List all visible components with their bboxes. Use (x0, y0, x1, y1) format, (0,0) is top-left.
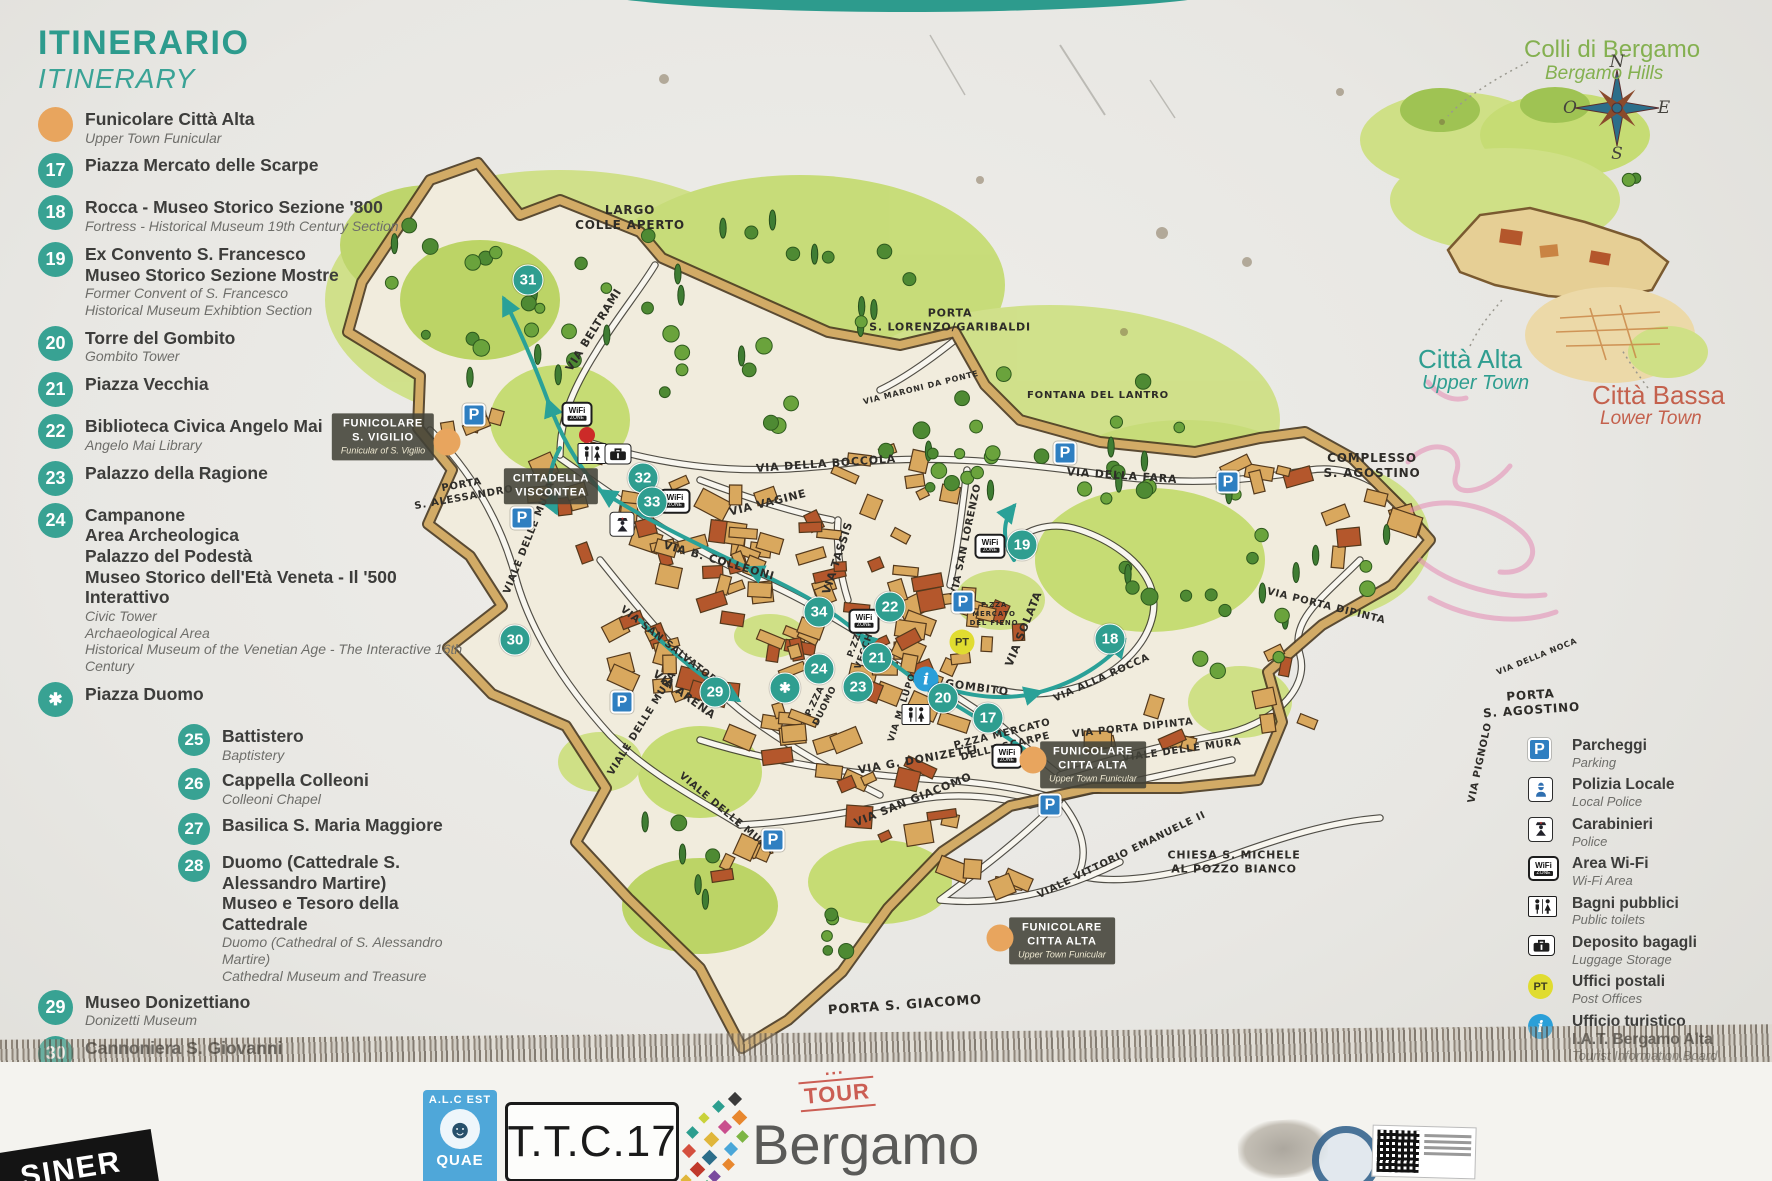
legend-item-text: Polizia LocaleLocal Police (1572, 776, 1675, 809)
parking-icon: P (463, 404, 486, 427)
map-marker-19: 19 (1007, 530, 1038, 561)
street-label: FONTANA DEL LANTRO (1027, 390, 1169, 403)
logo-diamond (698, 1112, 709, 1123)
citta-bassa-label: Città Bassa (1592, 380, 1725, 411)
legend-item-title: Area Wi-Fi (1572, 855, 1649, 873)
logo-diamond (690, 1162, 706, 1178)
station-label-line: FUNICOLARE (1049, 745, 1137, 759)
wifi-icon: WiFiZONE (992, 743, 1023, 768)
logo-diamond (718, 1120, 732, 1134)
item-subtitle: Baptistery (222, 747, 304, 764)
wifi-icon: WiFiZONE (1528, 856, 1559, 881)
citta-alta-sublabel: Upper Town (1422, 372, 1529, 395)
funicular-station-dot (987, 925, 1014, 952)
legend-item-subtitle: Local Police (1572, 794, 1675, 810)
star-badge: ✱ (38, 682, 73, 717)
itinerary-item-text: Piazza Duomo (85, 682, 204, 705)
legend-item-subtitle: Post Offices (1572, 991, 1665, 1007)
map-marker-20: 20 (928, 683, 959, 714)
map-icon-pos: P (952, 591, 975, 614)
toilets-icon (1528, 896, 1557, 917)
number-badge: 18 (38, 195, 73, 230)
itinerary-item: 19Ex Convento S. FrancescoMuseo Storico … (38, 242, 468, 319)
item-title: Piazza Mercato delle Scarpe (85, 155, 318, 176)
item-subtitle: Gombito Tower (85, 348, 235, 365)
compass-east: E (1658, 98, 1670, 118)
station-label-line: CITTA ALTA (1049, 759, 1137, 773)
logo-diamond (680, 1174, 691, 1181)
number-badge: 19 (38, 242, 73, 277)
luggage-icon (605, 444, 632, 465)
map-icon-pos: P (1217, 471, 1240, 494)
station-label: FUNICOLARECITTA ALTAUpper Town Funicular (1009, 917, 1115, 964)
item-subtitle: Duomo (Cathedral of S. Alessandro Martir… (222, 934, 468, 968)
number-badge: 22 (38, 414, 73, 449)
item-title: Battistero (222, 726, 304, 747)
item-title: Torre del Gombito (85, 328, 235, 349)
number-badge: 25 (178, 724, 210, 756)
logo-diamond (712, 1100, 725, 1113)
itinerary-item-text: Basilica S. Maria Maggiore (222, 813, 443, 836)
itinerary-item: 25BattisteroBaptistery (178, 724, 468, 763)
parking-icon: P (611, 691, 634, 714)
post-office-icon: PT (950, 630, 975, 655)
citta-alta-label: Città Alta (1418, 344, 1522, 375)
itinerary-item-text: Biblioteca Civica Angelo MaiAngelo Mai L… (85, 414, 323, 453)
map-icon-pos: P (762, 829, 785, 852)
legend-item-text: Area Wi-FiWi-Fi Area (1572, 855, 1649, 888)
itinerary-item-text: Cappella ColleoniColleoni Chapel (222, 768, 369, 807)
luggage-icon (1528, 935, 1555, 956)
parking-icon: P (1039, 794, 1062, 817)
number-badge: 29 (38, 990, 73, 1025)
tour-sticker: ▪▪▪ TOUR (797, 1065, 877, 1133)
ultras-sticker-bottom: QUAE (423, 1152, 497, 1169)
legend-item-subtitle: Police (1572, 834, 1653, 850)
itinerary-item-text: BattisteroBaptistery (222, 724, 304, 763)
item-title: Rocca - Museo Storico Sezione '800 (85, 197, 399, 218)
number-badge: 23 (38, 461, 73, 496)
street-label: PORTA S. LORENZO/GARIBALDI (869, 306, 1031, 334)
item-title: Cappella Colleoni (222, 770, 369, 791)
item-title: Basilica S. Maria Maggiore (222, 815, 443, 836)
logo-diamond (708, 1170, 721, 1181)
item-title: Palazzo della Ragione (85, 463, 268, 484)
itinerary-item: 24CampanoneArea ArcheologicaPalazzo del … (38, 503, 468, 675)
number-badge: 26 (178, 768, 210, 800)
legend-item-police: Polizia LocaleLocal Police (1528, 776, 1772, 809)
number-badge: 28 (178, 850, 210, 882)
map-icon-pos: P (511, 507, 534, 530)
ultras-emblem-icon: ☻ (440, 1109, 480, 1149)
itinerary-list: Funicolare Città AltaUpper Town Funicula… (38, 107, 468, 1181)
legend-item-title: Uffici postali (1572, 973, 1665, 991)
map-marker-22: 22 (875, 592, 906, 623)
map-marker-33: 33 (637, 487, 668, 518)
itinerary-item-text: CampanoneArea ArcheologicaPalazzo del Po… (85, 503, 468, 675)
legend-item-text: Deposito bagagliLuggage Storage (1572, 934, 1697, 967)
station-label-line: CITTADELLA (513, 472, 589, 486)
map-icon-pos (902, 704, 931, 728)
itinerary-item: 29Museo DonizettianoDonizetti Museum (38, 990, 468, 1029)
number-badge: 20 (38, 326, 73, 361)
legend-item-pt: PTUffici postaliPost Offices (1528, 973, 1772, 1006)
map-marker-21: 21 (862, 643, 893, 674)
item-subtitle: Colleoni Chapel (222, 791, 369, 808)
legend-icon-cell (1528, 776, 1562, 802)
itinerary-item-text: Museo DonizettianoDonizetti Museum (85, 990, 250, 1029)
panel-title: ITINERARIO (38, 24, 468, 63)
tour-sticker-text: TOUR (798, 1076, 875, 1112)
map-icon-pos: P (1054, 442, 1077, 465)
map-marker-star: ✱ (770, 673, 801, 704)
legend-item-text: ParcheggiParking (1572, 737, 1647, 770)
itinerary-panel: ITINERARIO ITINERARY Funicolare Città Al… (38, 24, 468, 1181)
logo-diamond (728, 1092, 742, 1106)
station-label-line: FUNICOLARE (1018, 921, 1106, 935)
map-icon-pos: WiFiZONE (562, 400, 593, 427)
legend-item-title: Polizia Locale (1572, 776, 1675, 794)
funicular-station-dot (1020, 747, 1047, 774)
map-icon-pos: WiFiZONE (992, 742, 1023, 769)
citta-bassa-sublabel: Lower Town (1600, 408, 1702, 430)
map-icon-pos (987, 925, 1014, 952)
map-marker-31: 31 (513, 265, 544, 296)
map-icon-pos: P (463, 404, 486, 427)
street-label: P.ZZA MERCATO DEL FIENO (970, 601, 1019, 627)
legend-item-subtitle: Public toilets (1572, 912, 1679, 928)
station-label: CITTADELLAVISCONTEA (504, 468, 598, 504)
number-badge: 21 (38, 372, 73, 407)
street-label: CHIESA S. MICHELE AL POZZO BIANCO (1167, 848, 1300, 876)
itinerary-item: Funicolare Città AltaUpper Town Funicula… (38, 107, 468, 146)
itinerary-item: 21Piazza Vecchia (38, 372, 468, 407)
qr-code-icon (1376, 1130, 1419, 1173)
inset-region-subtitle: Bergamo Hills (1545, 63, 1663, 85)
item-subtitle: Historical Museum Exhibtion Section (85, 302, 339, 319)
logo-diamond (682, 1144, 696, 1158)
station-label-line: CITTA ALTA (1018, 935, 1106, 949)
map-marker-23: 23 (843, 672, 874, 703)
station-label: FUNICOLARES. VIGILIOFunicular of S. Vigi… (332, 413, 434, 460)
parking-icon: P (952, 591, 975, 614)
itinerary-item: 26Cappella ColleoniColleoni Chapel (178, 768, 468, 807)
station-label-sub: Upper Town Funicular (1049, 773, 1137, 785)
map-icon-pos (578, 443, 607, 467)
logo-diamond (724, 1142, 738, 1156)
local-police-icon (1528, 777, 1553, 802)
legend-icon-cell: WiFiZONE (1528, 855, 1562, 881)
legend-item-wifi: WiFiZONEArea Wi-FiWi-Fi Area (1528, 855, 1772, 888)
map-icon-pos (1020, 747, 1047, 774)
legend-icon-cell (1528, 895, 1562, 917)
legend-item-title: Parcheggi (1572, 737, 1647, 755)
toilets-icon (578, 443, 607, 464)
map-marker-24: 24 (804, 654, 835, 685)
map-marker-29: 29 (700, 677, 731, 708)
itinerary-item: 18Rocca - Museo Storico Sezione '800Fort… (38, 195, 468, 234)
itinerary-item: 28Duomo (Cattedrale S. Alessandro Martir… (178, 850, 468, 985)
logo-diamond (704, 1132, 720, 1148)
itinerary-item: ✱Piazza Duomo (38, 682, 468, 717)
funicular-station-dot (434, 429, 461, 456)
map-marker-34: 34 (804, 597, 835, 628)
legend-item-luggage: Deposito bagagliLuggage Storage (1528, 934, 1772, 967)
station-label-sub: Upper Town Funicular (1018, 949, 1106, 961)
legend-item-title: Bagni pubblici (1572, 895, 1679, 913)
itinerary-item-text: Piazza Vecchia (85, 372, 209, 395)
post-office-icon: PT (1528, 974, 1553, 999)
panel-subtitle: ITINERARY (38, 63, 468, 95)
item-subtitle: Historical Museum of the Venetian Age - … (85, 641, 468, 675)
map-sign-board: ITINERARIO ITINERARY Funicolare Città Al… (0, 0, 1772, 1181)
carabinieri-icon (610, 512, 635, 537)
station-label-sub: Funicular of S. Vigilio (341, 445, 425, 457)
item-title: Campanone (85, 505, 468, 526)
item-title: Museo e Tesoro della Cattedrale (222, 893, 468, 934)
item-title: Palazzo del Podestà (85, 546, 468, 567)
item-subtitle: Fortress - Historical Museum 19th Centur… (85, 218, 399, 235)
qr-sticker (1371, 1125, 1476, 1180)
itinerary-item-text: Rocca - Museo Storico Sezione '800Fortre… (85, 195, 399, 234)
item-title: Ex Convento S. Francesco (85, 244, 339, 265)
logo-diamond (722, 1158, 735, 1171)
carabinieri-icon (1528, 817, 1553, 842)
ultras-sticker-top: A.L.C EST (423, 1090, 497, 1106)
item-title: Piazza Vecchia (85, 374, 209, 395)
red-dot (579, 427, 595, 443)
parking-icon: P (762, 829, 785, 852)
item-subtitle: Upper Town Funicular (85, 130, 255, 147)
parking-icon: P (1528, 738, 1551, 761)
legend-item-title: Carabinieri (1572, 816, 1653, 834)
legend-item-text: Uffici postaliPost Offices (1572, 973, 1665, 1006)
compass-north: N (1610, 52, 1625, 72)
logo-diamond (736, 1130, 749, 1143)
legend-item-carabinieri: CarabinieriPolice (1528, 816, 1772, 849)
funicular-dot-badge (38, 107, 73, 142)
toilets-icon (902, 704, 931, 725)
ultras-sticker: A.L.C EST ☻ QUAE (423, 1090, 497, 1181)
map-icon-pos: PT (950, 630, 975, 655)
legend-icon-cell: PT (1528, 973, 1562, 999)
station-label: FUNICOLARECITTA ALTAUpper Town Funicular (1040, 741, 1146, 788)
itinerary-item-text: Palazzo della Ragione (85, 461, 268, 484)
legend-item-subtitle: Luggage Storage (1572, 952, 1697, 968)
legend-icon-cell (1528, 816, 1562, 842)
item-title: Museo Storico Sezione Mostre (85, 265, 339, 286)
legend-item-toilets: Bagni pubbliciPublic toilets (1528, 895, 1772, 928)
itinerary-item-text: Ex Convento S. FrancescoMuseo Storico Se… (85, 242, 339, 319)
station-label-line: FUNICOLARE (341, 417, 425, 431)
legend-item-parking: PParcheggiParking (1528, 737, 1772, 770)
legend-item-title: Deposito bagagli (1572, 934, 1697, 952)
itinerary-item: 23Palazzo della Ragione (38, 461, 468, 496)
station-label-line: VISCONTEA (513, 486, 589, 500)
map-icon-pos (610, 512, 635, 539)
wifi-icon: WiFiZONE (562, 401, 593, 426)
itinerary-item-text: Torre del GombitoGombito Tower (85, 326, 235, 365)
map-marker-30: 30 (500, 625, 531, 656)
street-label: LARGO COLLE APERTO (575, 203, 685, 233)
map-icon-pos (605, 444, 632, 467)
item-title: Biblioteca Civica Angelo Mai (85, 416, 323, 437)
itinerary-item-text: Piazza Mercato delle Scarpe (85, 153, 318, 176)
street-label: COMPLESSO S. AGOSTINO (1323, 451, 1420, 481)
number-badge: 27 (178, 813, 210, 845)
item-title: Duomo (Cattedrale S. Alessandro Martire) (222, 852, 468, 893)
itinerary-item-text: Funicolare Città AltaUpper Town Funicula… (85, 107, 255, 146)
legend-item-subtitle: Wi-Fi Area (1572, 873, 1649, 889)
legend-icon-cell: P (1528, 737, 1562, 761)
legend-item-subtitle: Parking (1572, 755, 1647, 771)
ttc-plate: T.T.C.17 (505, 1102, 679, 1181)
inset-minimap (1360, 62, 1708, 388)
itinerary-item: 27Basilica S. Maria Maggiore (178, 813, 468, 845)
map-icon-pos: P (1039, 794, 1062, 817)
parking-icon: P (1054, 442, 1077, 465)
item-title: Piazza Duomo (85, 684, 204, 705)
parking-icon: P (1217, 471, 1240, 494)
item-subtitle: Donizetti Museum (85, 1012, 250, 1029)
map-icon-pos (579, 427, 595, 443)
item-subtitle: Archaeological Area (85, 625, 468, 642)
number-badge: 24 (38, 503, 73, 538)
itinerary-item: 17Piazza Mercato delle Scarpe (38, 153, 468, 188)
logo-diamond (702, 1150, 718, 1166)
parking-icon: P (511, 507, 534, 530)
wifi-icon: WiFiZONE (975, 533, 1006, 558)
map-icon-pos: P (611, 691, 634, 714)
map-marker-18: 18 (1095, 624, 1126, 655)
item-title: Funicolare Città Alta (85, 109, 255, 130)
item-title: Area Archeologica (85, 525, 468, 546)
legend-item-text: Bagni pubbliciPublic toilets (1572, 895, 1679, 928)
graffiti (1408, 382, 1556, 619)
map-icon-pos (434, 429, 461, 456)
item-subtitle: Cathedral Museum and Treasure (222, 968, 468, 985)
legend-icon-cell (1528, 934, 1562, 956)
compass-south: S (1611, 144, 1623, 164)
item-subtitle: Civic Tower (85, 608, 468, 625)
logo-diamond (732, 1110, 748, 1126)
number-badge: 17 (38, 153, 73, 188)
item-title: Museo Donizettiano (85, 992, 250, 1013)
item-subtitle: Angelo Mai Library (85, 437, 323, 454)
compass-west: O (1563, 98, 1577, 118)
logo-diamond (686, 1126, 699, 1139)
itinerary-item: 20Torre del GombitoGombito Tower (38, 326, 468, 365)
item-title: Museo Storico dell'Età Veneta - Il '500 … (85, 567, 468, 608)
station-label-line: S. VIGILIO (341, 431, 425, 445)
map-icon-pos: WiFiZONE (975, 532, 1006, 559)
itinerary-item-text: Duomo (Cattedrale S. Alessandro Martire)… (222, 850, 468, 985)
legend-item-text: CarabinieriPolice (1572, 816, 1653, 849)
item-subtitle: Former Convent of S. Francesco (85, 285, 339, 302)
bergamo-logo-diamonds (678, 1090, 753, 1181)
map-marker-17: 17 (973, 703, 1004, 734)
